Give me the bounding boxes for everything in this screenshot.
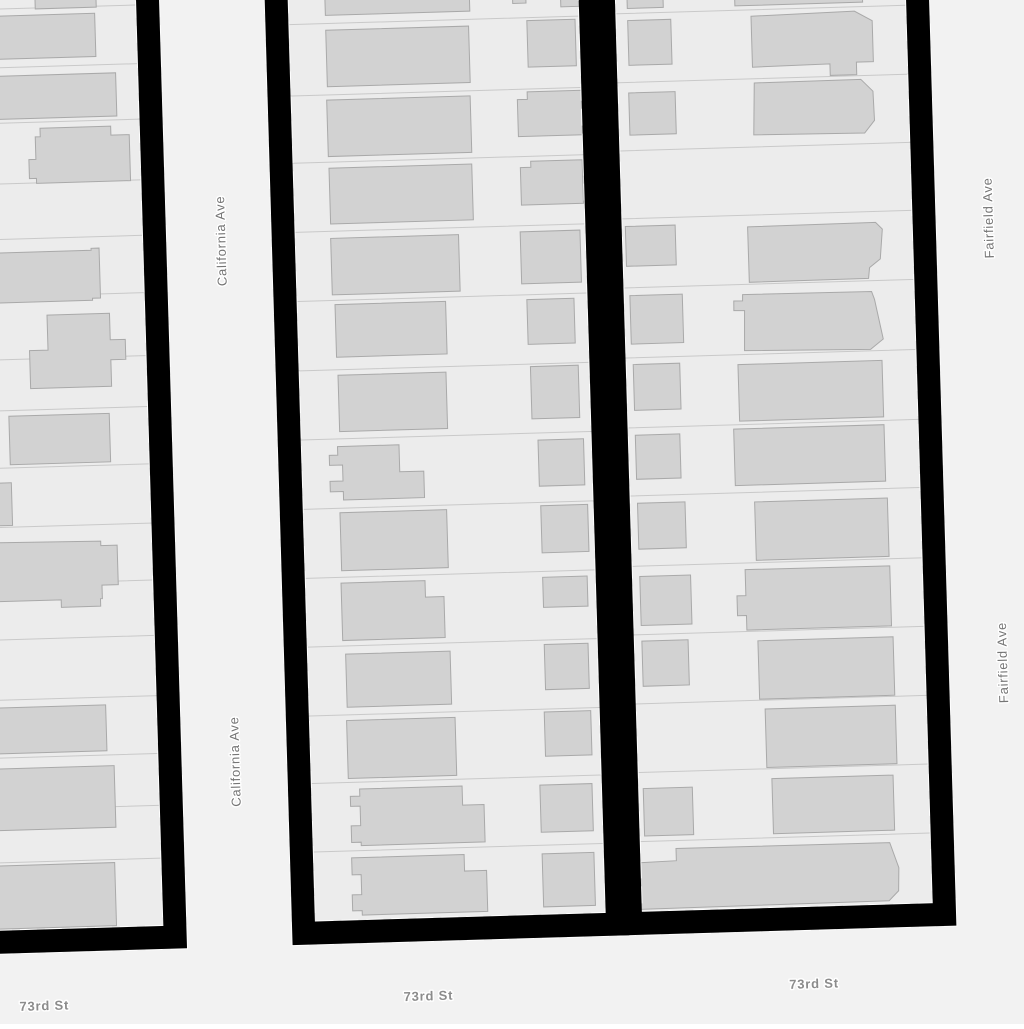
svg-text:73rd St: 73rd St <box>19 997 69 1013</box>
svg-text:California Ave: California Ave <box>226 716 244 807</box>
svg-text:73rd St: 73rd St <box>789 975 839 991</box>
svg-text:73rd St: 73rd St <box>403 988 453 1004</box>
svg-text:California Ave: California Ave <box>212 195 230 286</box>
svg-text:Fairfield Ave: Fairfield Ave <box>980 177 997 258</box>
svg-text:Fairfield Ave: Fairfield Ave <box>994 622 1011 703</box>
